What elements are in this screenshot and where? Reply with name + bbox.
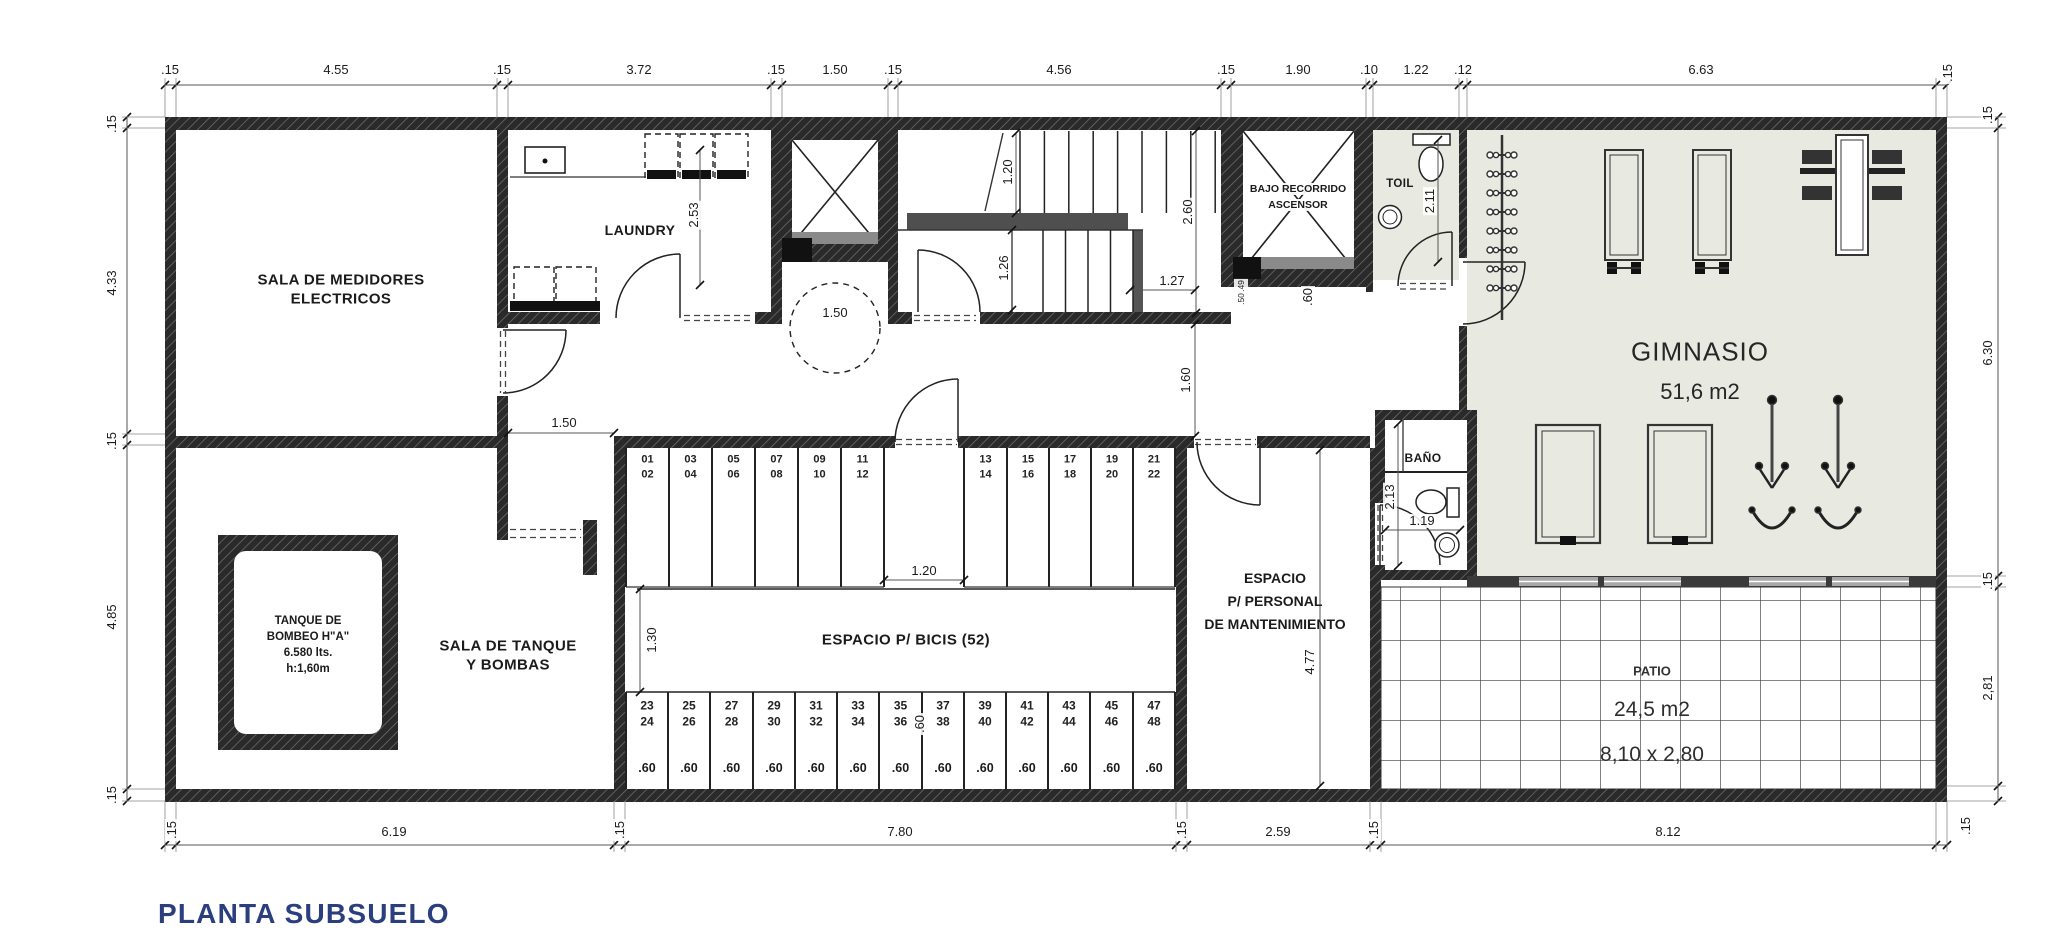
stall-width-label: .60 <box>765 761 782 775</box>
dimension-label: .15 <box>159 63 181 77</box>
bike-stall-number: 13 <box>979 455 991 466</box>
dimension-label: 1.90 <box>1283 63 1312 77</box>
bike-stall-number: 22 <box>1148 470 1160 481</box>
dimension-label: .15 <box>1959 815 1973 837</box>
bike-stall-number: 11 <box>857 455 869 466</box>
dimension-label: 2.60 <box>1181 197 1195 226</box>
bike-stall-number: 35 <box>894 701 907 712</box>
bike-stall-number: 24 <box>640 717 653 728</box>
dimension-label: .60 <box>1301 286 1315 308</box>
dimension-label: 1.50 <box>549 416 578 430</box>
dimension-label: .12 <box>1452 63 1474 77</box>
dimension-label: 2.59 <box>1263 825 1292 839</box>
bike-stall-number: 41 <box>1020 701 1033 712</box>
stall-width-label: .60 <box>1145 761 1162 775</box>
bike-stall-number: 31 <box>809 701 822 712</box>
dimension-label: 1.19 <box>1407 514 1436 528</box>
dimension-label: 4.77 <box>1303 647 1317 676</box>
dimension-label: 1.26 <box>997 253 1011 282</box>
bike-stall-number: 08 <box>770 470 782 481</box>
room-label-patio: PATIO <box>1633 664 1671 679</box>
room-label-ascensor-2: ASCENSOR <box>1266 199 1330 211</box>
dimension-label: 6.63 <box>1686 63 1715 77</box>
stall-width-label: .60 <box>892 761 909 775</box>
dimension-label: 2,81 <box>1981 673 1995 702</box>
tank-label-3: 6.580 lts. <box>284 647 333 659</box>
bike-stall-number: 18 <box>1064 470 1076 481</box>
room-size-patio: 8,10 x 2,80 <box>1600 743 1704 767</box>
bike-stall-number: 45 <box>1105 701 1118 712</box>
stall-width-label: .60 <box>934 761 951 775</box>
room-label-personal-1: ESPACIO <box>1244 570 1306 586</box>
dimension-label: .15 <box>1367 819 1381 841</box>
stall-width-label: .60 <box>680 761 697 775</box>
room-label-laundry: LAUNDRY <box>605 222 676 238</box>
floor-plan-sheet: SALA DE MEDIDORES ELECTRICOS LAUNDRY BAJ… <box>0 0 2068 950</box>
room-label-medidores-1: SALA DE MEDIDORES <box>257 272 424 289</box>
stall-width-label: .60 <box>976 761 993 775</box>
room-label-medidores-2: ELECTRICOS <box>291 291 392 308</box>
bike-stall-number: 15 <box>1022 455 1034 466</box>
bike-stall-number: 07 <box>770 455 782 466</box>
bike-stall-number: 39 <box>978 701 991 712</box>
bike-stall-number: 23 <box>640 701 653 712</box>
bike-stall-number: 20 <box>1106 470 1118 481</box>
room-label-personal-3: DE MANTENIMIENTO <box>1204 616 1345 632</box>
bike-stall-number: 28 <box>725 717 738 728</box>
dimension-label: 2.53 <box>687 200 701 229</box>
stall-width-label: .60 <box>723 761 740 775</box>
dimension-label: .15 <box>1981 104 1995 126</box>
dimension-label: 2.13 <box>1383 482 1397 511</box>
bike-stall-number: 42 <box>1020 717 1033 728</box>
bike-stall-number: 38 <box>936 717 949 728</box>
bike-stall-number: 12 <box>856 470 868 481</box>
bike-stall-number: 25 <box>682 701 695 712</box>
bike-stall-number: 14 <box>979 470 991 481</box>
dimension-label: 4.56 <box>1044 63 1073 77</box>
bike-stall-number: 43 <box>1062 701 1075 712</box>
bike-stall-number: 16 <box>1022 470 1034 481</box>
bike-stall-number: 30 <box>767 717 780 728</box>
dimension-label: 4.85 <box>105 602 119 631</box>
tank-label-1: TANQUE DE <box>275 615 342 627</box>
bike-stall-number: 27 <box>725 701 738 712</box>
bike-stall-number: 33 <box>851 701 864 712</box>
dimension-label: 4.33 <box>105 268 119 297</box>
dimension-label: .15 <box>1941 62 1955 84</box>
bike-stall-number: 34 <box>851 717 864 728</box>
room-label-ascensor-1: BAJO RECORRIDO <box>1248 183 1348 195</box>
dimension-label: .15 <box>613 819 627 841</box>
dimension-label: .60 <box>913 713 927 735</box>
tank-label-2: BOMBEO H"A" <box>267 631 349 643</box>
room-area-gym: 51,6 m2 <box>1660 379 1740 405</box>
dimension-label: 1.60 <box>1179 365 1193 394</box>
dimension-label: .15 <box>105 113 119 135</box>
dimension-label: .15 <box>105 430 119 452</box>
room-label-bicis: ESPACIO P/ BICIS (52) <box>822 632 990 649</box>
bike-stall-number: 09 <box>813 455 825 466</box>
room-label-toil: TOIL <box>1386 178 1414 190</box>
bike-stall-number: 46 <box>1105 717 1118 728</box>
dimension-label: 1.20 <box>909 564 938 578</box>
dimension-label: .15 <box>882 63 904 77</box>
dimension-label: .50 <box>1234 292 1248 306</box>
dimension-label: .15 <box>165 819 179 841</box>
dimension-label: 1.27 <box>1157 274 1186 288</box>
bike-stall-number: 04 <box>684 470 696 481</box>
bike-stall-number: 29 <box>767 701 780 712</box>
stall-width-label: .60 <box>849 761 866 775</box>
dimension-label: 8.12 <box>1653 825 1682 839</box>
plan-labels: SALA DE MEDIDORES ELECTRICOS LAUNDRY BAJ… <box>0 0 2068 950</box>
dimension-label: .15 <box>491 63 513 77</box>
dimension-label: 7.80 <box>885 825 914 839</box>
bike-stall-number: 37 <box>936 701 949 712</box>
room-label-gym: GIMNASIO <box>1631 337 1769 368</box>
stall-width-label: .60 <box>638 761 655 775</box>
dimension-label: 1.50 <box>820 306 849 320</box>
dimension-label: 2.11 <box>1423 187 1437 215</box>
bike-stall-number: 40 <box>978 717 991 728</box>
stall-width-label: .60 <box>1103 761 1120 775</box>
bike-stall-number: 19 <box>1106 455 1118 466</box>
page-title: PLANTA SUBSUELO <box>158 898 450 930</box>
bike-stall-number: 01 <box>641 455 653 466</box>
room-label-personal-2: P/ PERSONAL <box>1228 593 1323 609</box>
stall-width-label: .60 <box>1060 761 1077 775</box>
bike-stall-number: 02 <box>641 470 653 481</box>
bike-stall-number: 26 <box>682 717 695 728</box>
room-label-tanque-sala-2: Y BOMBAS <box>466 657 550 674</box>
dimension-label: 3.72 <box>624 63 653 77</box>
bike-stall-number: 06 <box>727 470 739 481</box>
bike-stall-number: 17 <box>1064 455 1076 466</box>
dimension-label: 1.22 <box>1401 63 1430 77</box>
room-area-patio: 24,5 m2 <box>1614 698 1690 722</box>
bike-stall-number: 36 <box>894 717 907 728</box>
dimension-label: .15 <box>765 63 787 77</box>
bike-stall-number: 48 <box>1147 717 1160 728</box>
bike-stall-number: 47 <box>1147 701 1160 712</box>
dimension-label: 6.19 <box>379 825 408 839</box>
bike-stall-number: 03 <box>684 455 696 466</box>
stall-width-label: .60 <box>807 761 824 775</box>
dimension-label: 1.20 <box>1001 157 1015 186</box>
dimension-label: 4.55 <box>321 63 350 77</box>
dimension-label: .15 <box>1215 63 1237 77</box>
room-label-bano: BAÑO <box>1405 451 1442 465</box>
stall-width-label: .60 <box>1018 761 1035 775</box>
dimension-label: 1.30 <box>645 625 659 654</box>
bike-stall-number: 21 <box>1148 455 1160 466</box>
bike-stall-number: 05 <box>727 455 739 466</box>
dimension-label: .15 <box>1175 819 1189 841</box>
room-label-tanque-sala-1: SALA DE TANQUE <box>439 638 576 655</box>
bike-stall-number: 44 <box>1062 717 1075 728</box>
dimension-label: 6.30 <box>1981 338 1995 367</box>
dimension-label: .10 <box>1358 63 1380 77</box>
dimension-label: .15 <box>105 784 119 806</box>
bike-stall-number: 32 <box>809 717 822 728</box>
dimension-label: .49 <box>1234 279 1248 293</box>
tank-label-4: h:1,60m <box>286 663 329 675</box>
dimension-label: .15 <box>1981 570 1995 592</box>
bike-stall-number: 10 <box>813 470 825 481</box>
dimension-label: 1.50 <box>820 63 849 77</box>
